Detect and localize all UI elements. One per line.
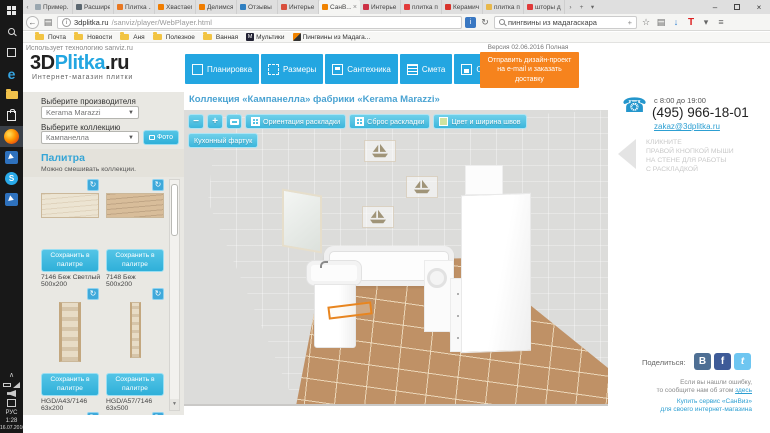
tab-favicon — [117, 4, 123, 10]
site-nav: ПланировкаРазмерыСантехникаСметаСохранит… — [185, 54, 523, 84]
save-to-palette-button[interactable]: Сохранить в палитре — [106, 373, 164, 396]
tile-size: 500x200 — [106, 281, 164, 288]
back-button[interactable]: ← — [26, 16, 39, 29]
seam-color-button[interactable]: Цвет и ширина швов — [433, 114, 526, 129]
tab-strip: Пример...Расшире...Плитка ...Хвастаем...… — [32, 0, 565, 14]
task-view-button[interactable] — [0, 42, 23, 63]
photo-label: Фото — [157, 134, 173, 141]
save-to-palette-button[interactable]: Сохранить в палитре — [41, 373, 99, 396]
cursor-app-icon — [5, 193, 18, 206]
tab-label: шторы д... — [535, 4, 561, 11]
palette-scrollbar[interactable]: ▼ — [169, 179, 180, 411]
remote-app-button-2[interactable] — [0, 189, 23, 210]
tile-code: HGD/A57/7146 — [106, 398, 164, 405]
nav-button-icon — [407, 64, 418, 75]
camera-icon — [149, 135, 155, 140]
penguin-icon — [293, 33, 301, 41]
nav-button-icon — [192, 64, 203, 75]
tab-label: СанВ... — [330, 4, 351, 11]
screen: e S ∧ РУС 1:28 16.07.2016 ‹ Пример...Рас… — [0, 0, 770, 433]
folder-icon — [120, 34, 129, 40]
tray-status-icons[interactable] — [0, 380, 23, 389]
battery-icon — [3, 383, 11, 387]
chevron-down-icon: ▼ — [128, 110, 134, 116]
bookmark-label: Ванная — [216, 34, 238, 41]
network-icon — [13, 382, 20, 388]
logo-plitka: Plitka — [55, 52, 105, 74]
send-project-button[interactable]: Отправить дизайн-проект на e-mail и зака… — [480, 52, 579, 88]
clock-date[interactable]: 16.07.2016 — [0, 425, 23, 431]
edge-button[interactable]: e — [0, 63, 23, 84]
search-icon — [499, 19, 505, 25]
site-nav-button-3[interactable]: Смета — [400, 54, 452, 84]
palette-header: Палитра Можно смешивать коллекции. — [23, 149, 184, 177]
firefox-icon — [4, 129, 19, 144]
browser-tab[interactable]: шторы д... — [524, 0, 565, 14]
reading-list-icon[interactable]: ▤ — [42, 17, 54, 28]
browser-tab[interactable]: плитка п... — [401, 0, 442, 14]
site-nav-button-1[interactable]: Размеры — [261, 54, 323, 84]
scrollbar-thumb[interactable] — [171, 184, 178, 236]
save-to-palette-button[interactable]: Сохранить в палитре — [41, 249, 99, 272]
search-input[interactable]: пингвины из мадагаскара + — [494, 16, 637, 29]
decor-tile-ship — [406, 176, 438, 198]
maximize-icon — [734, 4, 740, 10]
hint-text: КЛИКНИТЕПРАВОЙ КНОПКОЙ МЫШИНА СТЕНЕ ДЛЯ … — [646, 138, 734, 174]
tile-image[interactable] — [106, 193, 164, 218]
rotate-icon[interactable]: ↻ — [152, 288, 164, 300]
working-hours: с 8:00 до 19:00 — [654, 96, 706, 105]
maximize-button[interactable] — [726, 0, 748, 14]
zoom-out-button[interactable]: − — [188, 114, 204, 129]
bookmark-item[interactable]: MМультики — [246, 33, 284, 41]
folder-icon — [6, 91, 18, 99]
bookmark-label: Полезное — [166, 34, 195, 41]
tile-image[interactable] — [41, 193, 99, 218]
faucet — [320, 261, 328, 268]
hint-line: С РАСКЛАДКОЙ — [646, 165, 734, 174]
zoom-in-button[interactable]: + — [207, 114, 223, 129]
nav-button-icon — [461, 64, 472, 75]
twitter-icon[interactable]: t — [734, 353, 751, 370]
reset-label: Сброс раскладки — [367, 117, 424, 126]
skype-button[interactable]: S — [0, 168, 23, 189]
decor-tile-ship — [364, 140, 396, 162]
email-link[interactable]: zakaz@3dplitka.ru — [654, 122, 720, 131]
sidebar: Выберите производителя Kerama Marazzi▼ В… — [23, 92, 184, 415]
tab-favicon — [199, 4, 205, 10]
tab-label: Керамич... — [453, 4, 479, 11]
tab-favicon — [527, 4, 533, 10]
mirror — [282, 188, 322, 253]
orientation-label: Ориентация раскладки — [263, 117, 340, 126]
tab-favicon — [486, 4, 492, 10]
bookmark-item[interactable]: Почта — [35, 34, 66, 41]
tab-bar: ‹ Пример...Расшире...Плитка ...Хвастаем.… — [23, 0, 770, 14]
downloads-button[interactable]: ↓ — [670, 17, 682, 27]
collection-select[interactable]: Кампанелла▼ — [41, 131, 139, 144]
browser-tab[interactable]: СанВ...× — [319, 0, 360, 14]
clock-time[interactable]: 1:28 — [0, 418, 23, 425]
bookmark-item[interactable]: Новости — [74, 34, 112, 41]
browser-tab[interactable]: Пример... — [32, 0, 73, 14]
palette-grid: ↻Сохранить в палитре7146 Беж Светлый500x… — [41, 179, 164, 415]
fullscreen-icon — [230, 119, 239, 125]
sink — [306, 260, 362, 286]
cursor-app-icon — [5, 151, 18, 164]
nav-button-label: Сантехника — [347, 65, 391, 74]
tab-label: Интерье... — [371, 4, 397, 11]
arrow-left-icon — [618, 139, 636, 169]
tab-close-icon[interactable]: × — [353, 4, 357, 11]
vk-icon[interactable]: В — [694, 353, 711, 370]
firefox-button[interactable] — [0, 126, 23, 147]
logo-subtitle: Интернет-магазин плитки — [32, 74, 133, 81]
buy-service-link[interactable]: Купить сервис «СанВиз»для своего интерне… — [622, 398, 752, 414]
nav-button-icon — [332, 64, 343, 75]
collection-value: Кампанелла — [46, 133, 89, 142]
hidden-icons-button[interactable]: ∧ — [0, 372, 23, 380]
logo-ru: .ru — [105, 52, 129, 74]
tech-note: Использует технологию sanviz.ru — [26, 45, 133, 52]
tile-code: 7148 Беж — [106, 274, 164, 281]
palette-item: ↻Сохранить в палитреHGD/A43/714663x200 — [41, 288, 99, 412]
tall-cabinet — [461, 193, 531, 353]
tab-favicon — [76, 4, 82, 10]
tab-overflow-button[interactable]: › — [565, 0, 576, 14]
m-badge-icon: M — [246, 33, 254, 41]
nav-button-icon — [268, 64, 279, 75]
bookmark-item[interactable]: Аня — [120, 34, 144, 41]
buy-line: Купить сервис «СанВиз» — [622, 398, 752, 406]
url-input[interactable]: i 3dplitka.ru/sanviz/player/WebPlayer.ht… — [57, 16, 462, 29]
store-button[interactable] — [0, 105, 23, 126]
bookmark-label: Пингвины из Мадага... — [303, 34, 371, 41]
close-button[interactable]: × — [748, 0, 770, 14]
bookmark-item[interactable]: Ванная — [203, 34, 238, 41]
tab-favicon — [240, 4, 246, 10]
manufacturer-value: Kerama Marazzi — [46, 108, 101, 117]
start-button[interactable] — [0, 0, 23, 21]
page-content: Использует технологию sanviz.ru 3DPlitka… — [23, 43, 770, 433]
drawer-handle — [457, 315, 459, 317]
addon-dropdown[interactable]: ▾ — [700, 17, 712, 28]
tab-favicon — [404, 4, 410, 10]
tab-favicon — [363, 4, 369, 10]
tab-label: Хвастаем... — [166, 4, 192, 11]
manufacturer-select[interactable]: Kerama Marazzi▼ — [41, 106, 139, 119]
edge-icon: e — [8, 67, 16, 81]
seams-label: Цвет и ширина швов — [451, 117, 520, 126]
facebook-icon[interactable]: f — [714, 353, 731, 370]
hint-line: КЛИКНИТЕ — [646, 138, 734, 147]
photo-button[interactable]: Фото — [143, 130, 179, 145]
site-nav-button-2[interactable]: Сантехника — [325, 54, 398, 84]
library-button[interactable]: ▤ — [655, 17, 667, 28]
windows-logo-icon — [7, 6, 11, 10]
tab-list-dropdown[interactable]: ▾ — [587, 0, 598, 14]
skype-icon: S — [5, 172, 18, 185]
tab-label: Плитка ... — [125, 4, 151, 11]
nav-button-label: Смета — [422, 65, 445, 74]
tile-size: 63x500 — [106, 405, 164, 412]
bookmarks-bar: ПочтаНовостиАняПолезноеВаннаяMМультикиПи… — [23, 32, 770, 43]
hint-line: ПРАВОЙ КНОПКОЙ МЫШИ — [646, 147, 734, 156]
menu-button[interactable]: ≡ — [715, 17, 727, 27]
folder-icon — [74, 34, 83, 40]
addon-t-button[interactable]: T — [685, 17, 697, 28]
search-icon — [8, 28, 15, 35]
site-nav-button-0[interactable]: Планировка — [185, 54, 259, 84]
bookmark-item[interactable]: Полезное — [153, 34, 195, 41]
version-label: Версия 02.06.2016 Полная — [463, 44, 593, 51]
tab-label: Интерье... — [289, 4, 315, 11]
grid-icon — [251, 117, 260, 126]
bookmark-label: Новости — [87, 34, 112, 41]
collection-title: Коллекция «Кампанелла» фабрики «Kerama M… — [189, 94, 440, 105]
folder-icon — [35, 34, 44, 40]
palette-item: ↻Сохранить в палитре7146 Беж Светлый500x… — [41, 179, 99, 288]
tile-image[interactable] — [59, 302, 81, 362]
rotate-icon[interactable]: ↻ — [152, 412, 164, 415]
orientation-button[interactable]: Ориентация раскладки — [245, 114, 346, 129]
kitchen-apron-button[interactable]: Кухонный фартук — [188, 133, 258, 148]
rotate-icon[interactable]: ↻ — [87, 179, 99, 191]
folder-icon — [153, 34, 162, 40]
tab-favicon — [158, 4, 164, 10]
manufacturer-label: Выберите производителя — [41, 97, 136, 106]
cabinet-top — [465, 165, 503, 195]
browser-tab[interactable]: Отзывы ... — [237, 0, 278, 14]
phone-icon: ☎ — [622, 96, 647, 116]
tab-label: Делимся... — [207, 4, 233, 11]
washing-machine-door — [427, 268, 447, 288]
tab-label: Расшире... — [84, 4, 110, 11]
palette-item: ↻Сохранить в палитреHGD/A57/714663x500 — [106, 288, 164, 412]
scrollbar-down-arrow[interactable]: ▼ — [170, 399, 179, 410]
grid-icon — [355, 117, 364, 126]
3d-canvas[interactable]: − + Ориентация раскладки Сброс раскладки… — [184, 110, 608, 406]
remote-app-button[interactable] — [0, 147, 23, 168]
nav-button-label: Размеры — [283, 65, 316, 74]
tab-label: Пример... — [43, 4, 69, 11]
phone-number: (495) 966-18-01 — [652, 105, 749, 120]
add-search-engine-icon[interactable]: + — [628, 18, 632, 27]
tab-label: плитка п... — [494, 4, 520, 11]
contact-panel: ☎ с 8:00 до 19:00 (495) 966-18-01 zakaz@… — [608, 92, 770, 415]
system-tray: ∧ РУС 1:28 16.07.2016 — [0, 372, 23, 431]
task-view-icon — [7, 48, 16, 57]
tile-code: HGD/A43/7146 — [41, 398, 99, 405]
tab-label: плитка п... — [412, 4, 438, 11]
browser-tab[interactable]: Делимся... — [196, 0, 237, 14]
tile-image[interactable] — [130, 302, 141, 358]
scene-toolbar: − + Ориентация раскладки Сброс раскладки… — [188, 114, 527, 129]
drawer-handle — [457, 293, 459, 295]
url-host: 3dplitka.ru — [74, 18, 109, 27]
browser-tab[interactable]: Керамич... — [442, 0, 483, 14]
rotate-icon[interactable]: ↻ — [152, 179, 164, 191]
tab-favicon — [322, 4, 328, 10]
site-logo[interactable]: 3DPlitka.ru — [30, 52, 129, 75]
palette-item: ↻Сохранить в палитре7148 Беж500x200 — [106, 179, 164, 288]
fullscreen-button[interactable] — [226, 114, 242, 129]
error-line: Если вы нашли ошибку, — [622, 379, 752, 387]
volume-icon[interactable] — [7, 390, 16, 397]
tab-label: Отзывы ... — [248, 4, 274, 11]
error-line: то сообщите нам об этом здесь — [622, 387, 752, 395]
tile-code: 7146 Беж Светлый — [41, 274, 99, 281]
refresh-button[interactable]: ↻ — [479, 17, 491, 28]
reset-layout-button[interactable]: Сброс раскладки — [349, 114, 430, 129]
tile-size: 500x200 — [41, 281, 99, 288]
browser-tab[interactable]: Интерье... — [278, 0, 319, 14]
share-label: Поделиться: — [642, 358, 686, 367]
rotate-icon[interactable]: ↻ — [87, 412, 99, 415]
minimize-button[interactable]: – — [704, 0, 726, 14]
palette-item: ↻ — [41, 412, 99, 415]
palette-item: ↻ — [106, 412, 164, 415]
bookmark-label: Мультики — [256, 34, 284, 41]
error-here-link[interactable]: здесь — [735, 387, 752, 394]
tab-favicon — [281, 4, 287, 10]
report-error-text: Если вы нашли ошибку,то сообщите нам об … — [622, 379, 752, 395]
buy-line: для своего интернет-магазина — [622, 406, 752, 414]
browser-tab[interactable]: Плитка ... — [114, 0, 155, 14]
logo-3d: 3D — [30, 52, 55, 74]
tab-favicon — [35, 4, 41, 10]
bookmark-label: Почта — [48, 34, 66, 41]
nav-button-label: Планировка — [207, 65, 252, 74]
folder-icon — [203, 34, 212, 40]
tab-favicon — [445, 4, 451, 10]
decor-tile-ship — [362, 206, 394, 228]
palette-note: Можно смешивать коллекции. — [41, 166, 136, 173]
drawer-handle — [457, 337, 459, 339]
windows-taskbar: e S ∧ РУС 1:28 16.07.2016 — [0, 0, 23, 433]
page-action-icon[interactable]: i — [465, 17, 476, 28]
firefox-window: ‹ Пример...Расшире...Плитка ...Хвастаем.… — [23, 0, 770, 433]
tile-size: 63x200 — [41, 405, 99, 412]
new-tab-button[interactable]: + — [576, 0, 587, 14]
browser-tab[interactable]: плитка п... — [483, 0, 524, 14]
tab-scroll-left[interactable]: ‹ — [23, 0, 32, 14]
site-info-icon[interactable]: i — [62, 18, 71, 27]
hint-line: НА СТЕНЕ ДЛЯ РАБОТЫ — [646, 156, 734, 165]
palette-title: Палитра — [41, 152, 85, 164]
url-path: /sanviz/player/WebPlayer.html — [112, 18, 212, 27]
seam-color-icon — [439, 117, 448, 126]
save-to-palette-button[interactable]: Сохранить в палитре — [106, 249, 164, 272]
bookmark-item[interactable]: Пингвины из Мадага... — [293, 33, 371, 41]
chevron-down-icon: ▼ — [128, 135, 134, 141]
taskbar-search-button[interactable] — [0, 21, 23, 42]
browser-tab[interactable]: Интерье... — [360, 0, 401, 14]
notifications-icon[interactable] — [7, 399, 16, 407]
bookmark-star-button[interactable]: ☆ — [640, 17, 652, 28]
navigation-toolbar: ← ▤ i 3dplitka.ru/sanviz/player/WebPlaye… — [23, 14, 770, 31]
bookmark-label: Аня — [133, 34, 144, 41]
search-value: пингвины из мадагаскара — [508, 18, 597, 27]
file-explorer-button[interactable] — [0, 84, 23, 105]
browser-tab[interactable]: Хвастаем... — [155, 0, 196, 14]
rotate-icon[interactable]: ↻ — [87, 288, 99, 300]
window-controls: – × — [704, 0, 770, 14]
language-indicator[interactable]: РУС — [0, 409, 23, 418]
browser-tab[interactable]: Расшире... — [73, 0, 114, 14]
store-bag-icon — [7, 111, 16, 121]
